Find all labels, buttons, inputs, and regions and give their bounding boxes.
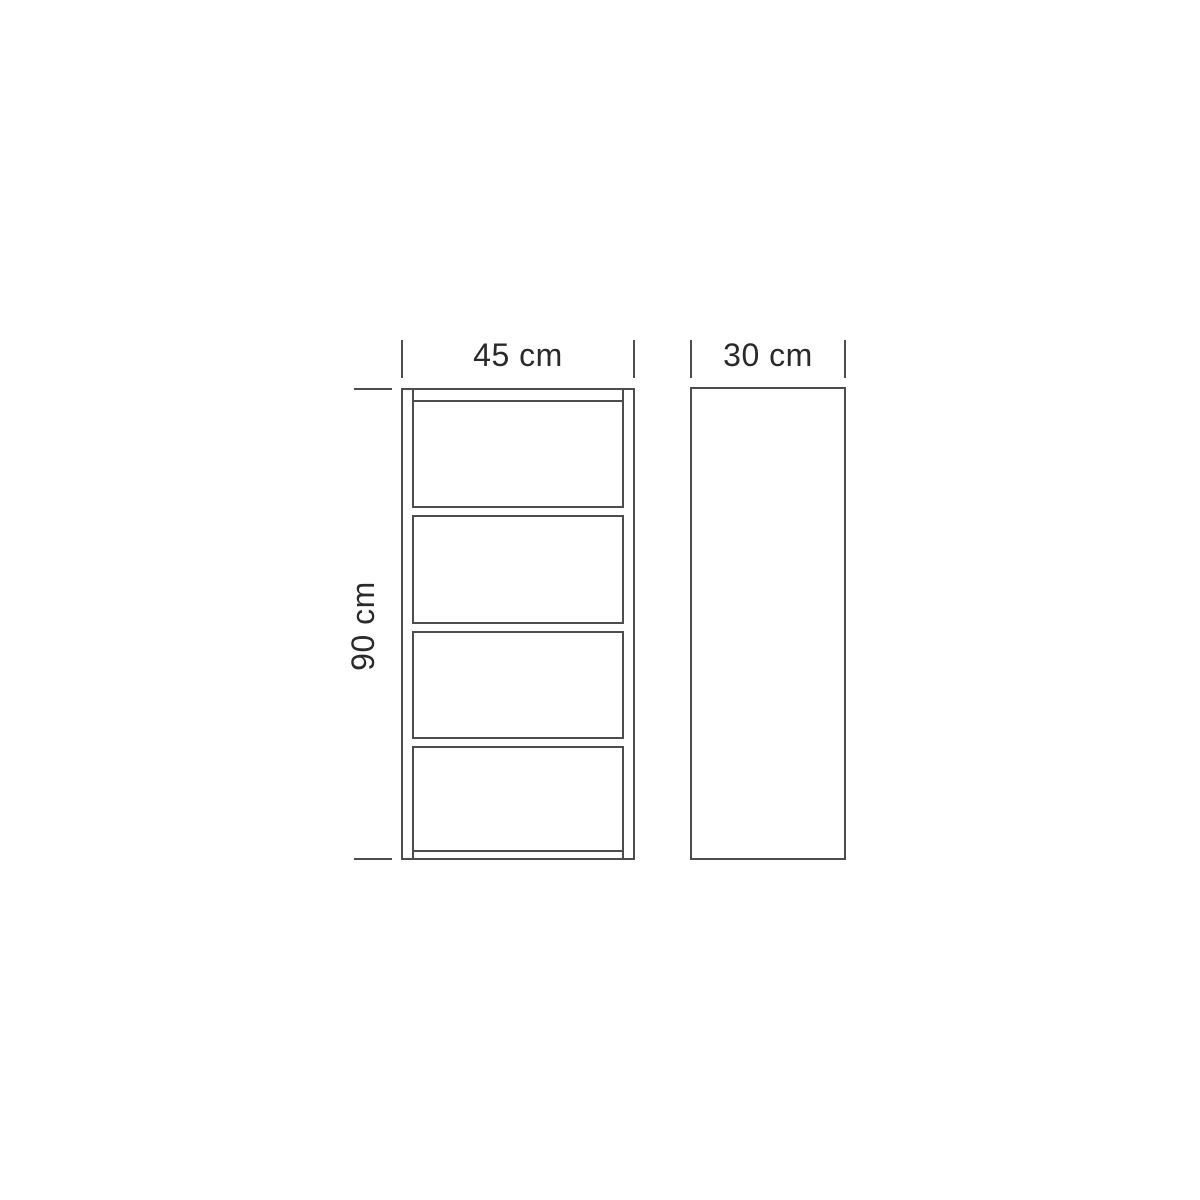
front-height-label: 90 cm (347, 581, 379, 671)
shelf-unit-front-view (401, 388, 635, 860)
side-depth-label: 30 cm (692, 339, 844, 371)
shelf-line (412, 622, 624, 633)
shelf-line (412, 506, 624, 517)
side-depth-dimension: 30 cm (690, 340, 846, 378)
diagram-canvas: 45 cm 30 cm 90 cm (0, 0, 1200, 1200)
front-width-label: 45 cm (403, 339, 633, 371)
top-panel-line (412, 400, 624, 402)
front-height-dimension: 90 cm (354, 388, 392, 860)
shelf-line (412, 737, 624, 748)
bottom-panel-line (412, 850, 624, 852)
front-width-dimension: 45 cm (401, 340, 635, 378)
shelf-unit-side-view (690, 387, 846, 860)
